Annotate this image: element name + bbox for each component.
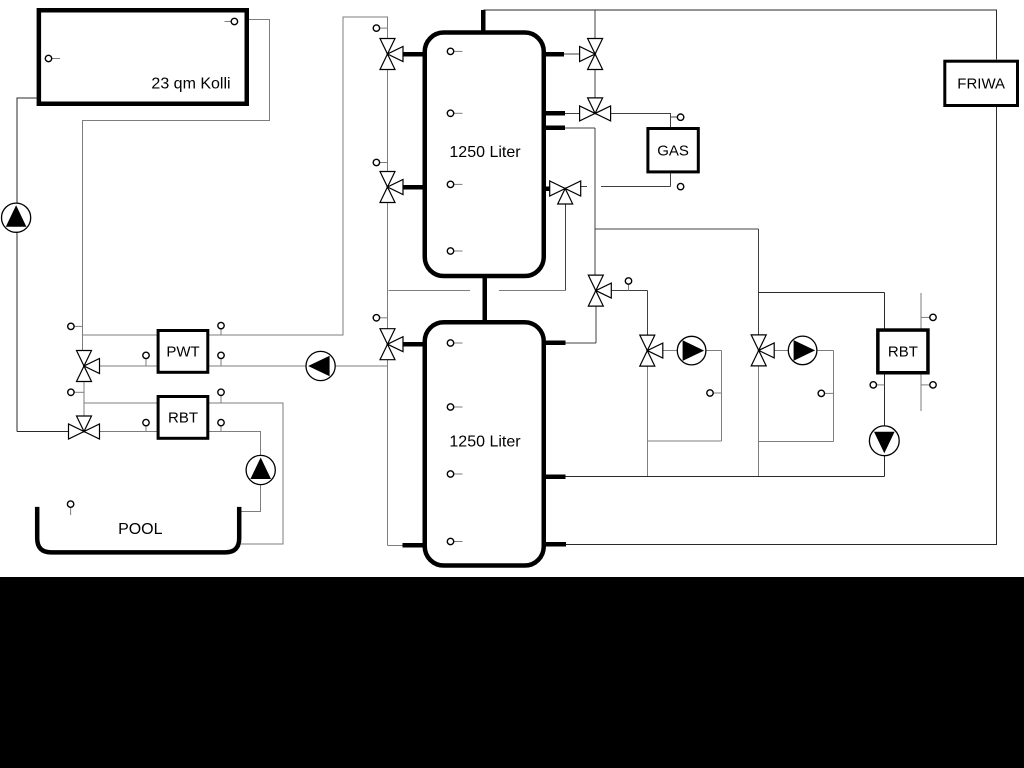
- svg-text:RBT: RBT: [888, 344, 918, 361]
- svg-text:RBT: RBT: [168, 410, 198, 427]
- svg-text:1250 Liter: 1250 Liter: [449, 144, 521, 161]
- svg-text:23 qm Kolli: 23 qm Kolli: [151, 76, 230, 93]
- svg-text:1250 Liter: 1250 Liter: [449, 434, 521, 451]
- svg-text:POOL: POOL: [118, 521, 163, 538]
- svg-text:GAS: GAS: [657, 143, 689, 160]
- svg-text:FRIWA: FRIWA: [957, 76, 1005, 93]
- svg-text:PWT: PWT: [166, 344, 199, 361]
